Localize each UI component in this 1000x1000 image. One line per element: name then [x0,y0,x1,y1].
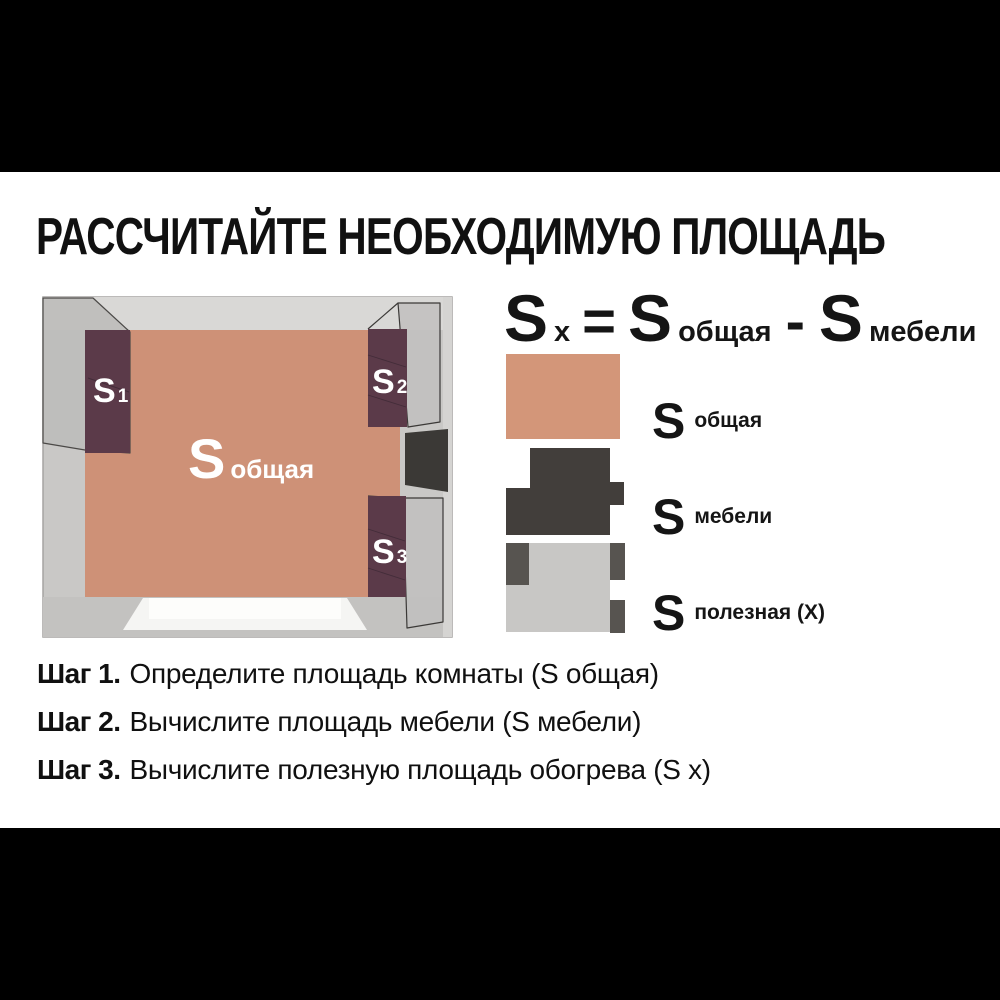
step-3-label: Шаг 3. [37,754,121,785]
step-1-text: Определите площадь комнаты (S общая) [130,658,659,689]
formula-furniture-sub: мебели [869,318,977,347]
door-shape [405,429,448,492]
floor-label-sub: общая [230,454,314,484]
formula-total-base: S [628,285,672,351]
formula-sx-base: S [504,285,548,351]
furniture-swatch-bottom [506,488,610,535]
s2-sub: 2 [397,377,408,398]
formula-total-sub: общая [678,318,772,347]
step-1: Шаг 1.Определите площадь комнаты (S обща… [37,658,659,690]
legend-label-furniture: S мебели [652,492,772,542]
room-diagram: S1 S2 S3 Sобщая [36,292,456,640]
step-2-text: Вычислите площадь мебели (S мебели) [130,706,642,737]
formula: S x = S общая - S мебели [504,285,976,351]
legend-label-useful: S полезная (X) [652,588,825,638]
floor-label-base: S [188,427,225,490]
s1-label: S [93,372,116,410]
useful-swatch-block-tl [506,543,529,585]
page-title: РАССЧИТАЙТЕ НЕОБХОДИМУЮ ПЛОЩАДЬ [36,211,885,263]
letterbox-bottom [0,828,1000,1000]
useful-swatch-block-br [610,600,625,633]
legend-label-total: S общая [652,396,762,446]
legend-swatch-furniture [506,448,625,535]
step-1-label: Шаг 1. [37,658,121,689]
window-glass [149,598,341,619]
legend-furniture-text: мебели [694,506,772,527]
furniture-swatch-tab [610,482,624,505]
letterbox-top [0,0,1000,172]
legend-swatch-useful [506,543,625,633]
legend-useful-text: полезная (X) [694,602,825,623]
legend-useful-base: S [652,588,685,638]
furniture-swatch-top [530,448,610,489]
formula-sx-sub: x [554,318,570,347]
infographic-page: РАССЧИТАЙТЕ НЕОБХОДИМУЮ ПЛОЩАДЬ S1 [0,0,1000,1000]
s3-sub: 3 [397,547,408,568]
formula-minus: - [786,293,805,351]
step-2: Шаг 2.Вычислите площадь мебели (S мебели… [37,706,641,738]
formula-equals: = [582,293,616,351]
step-3-text: Вычислите полезную площадь обогрева (S x… [130,754,711,785]
legend-total-text: общая [694,410,762,431]
s3-label: S [372,533,395,571]
step-3: Шаг 3.Вычислите полезную площадь обогрев… [37,754,711,786]
s2-label: S [372,363,395,401]
useful-swatch-block-tr [610,543,625,580]
furniture-s1: S1 [43,298,130,453]
legend-swatch-total [506,354,620,439]
step-2-label: Шаг 2. [37,706,121,737]
formula-furniture-base: S [819,285,863,351]
s1-sub: 1 [118,386,129,407]
legend-furniture-base: S [652,492,685,542]
legend-total-base: S [652,396,685,446]
